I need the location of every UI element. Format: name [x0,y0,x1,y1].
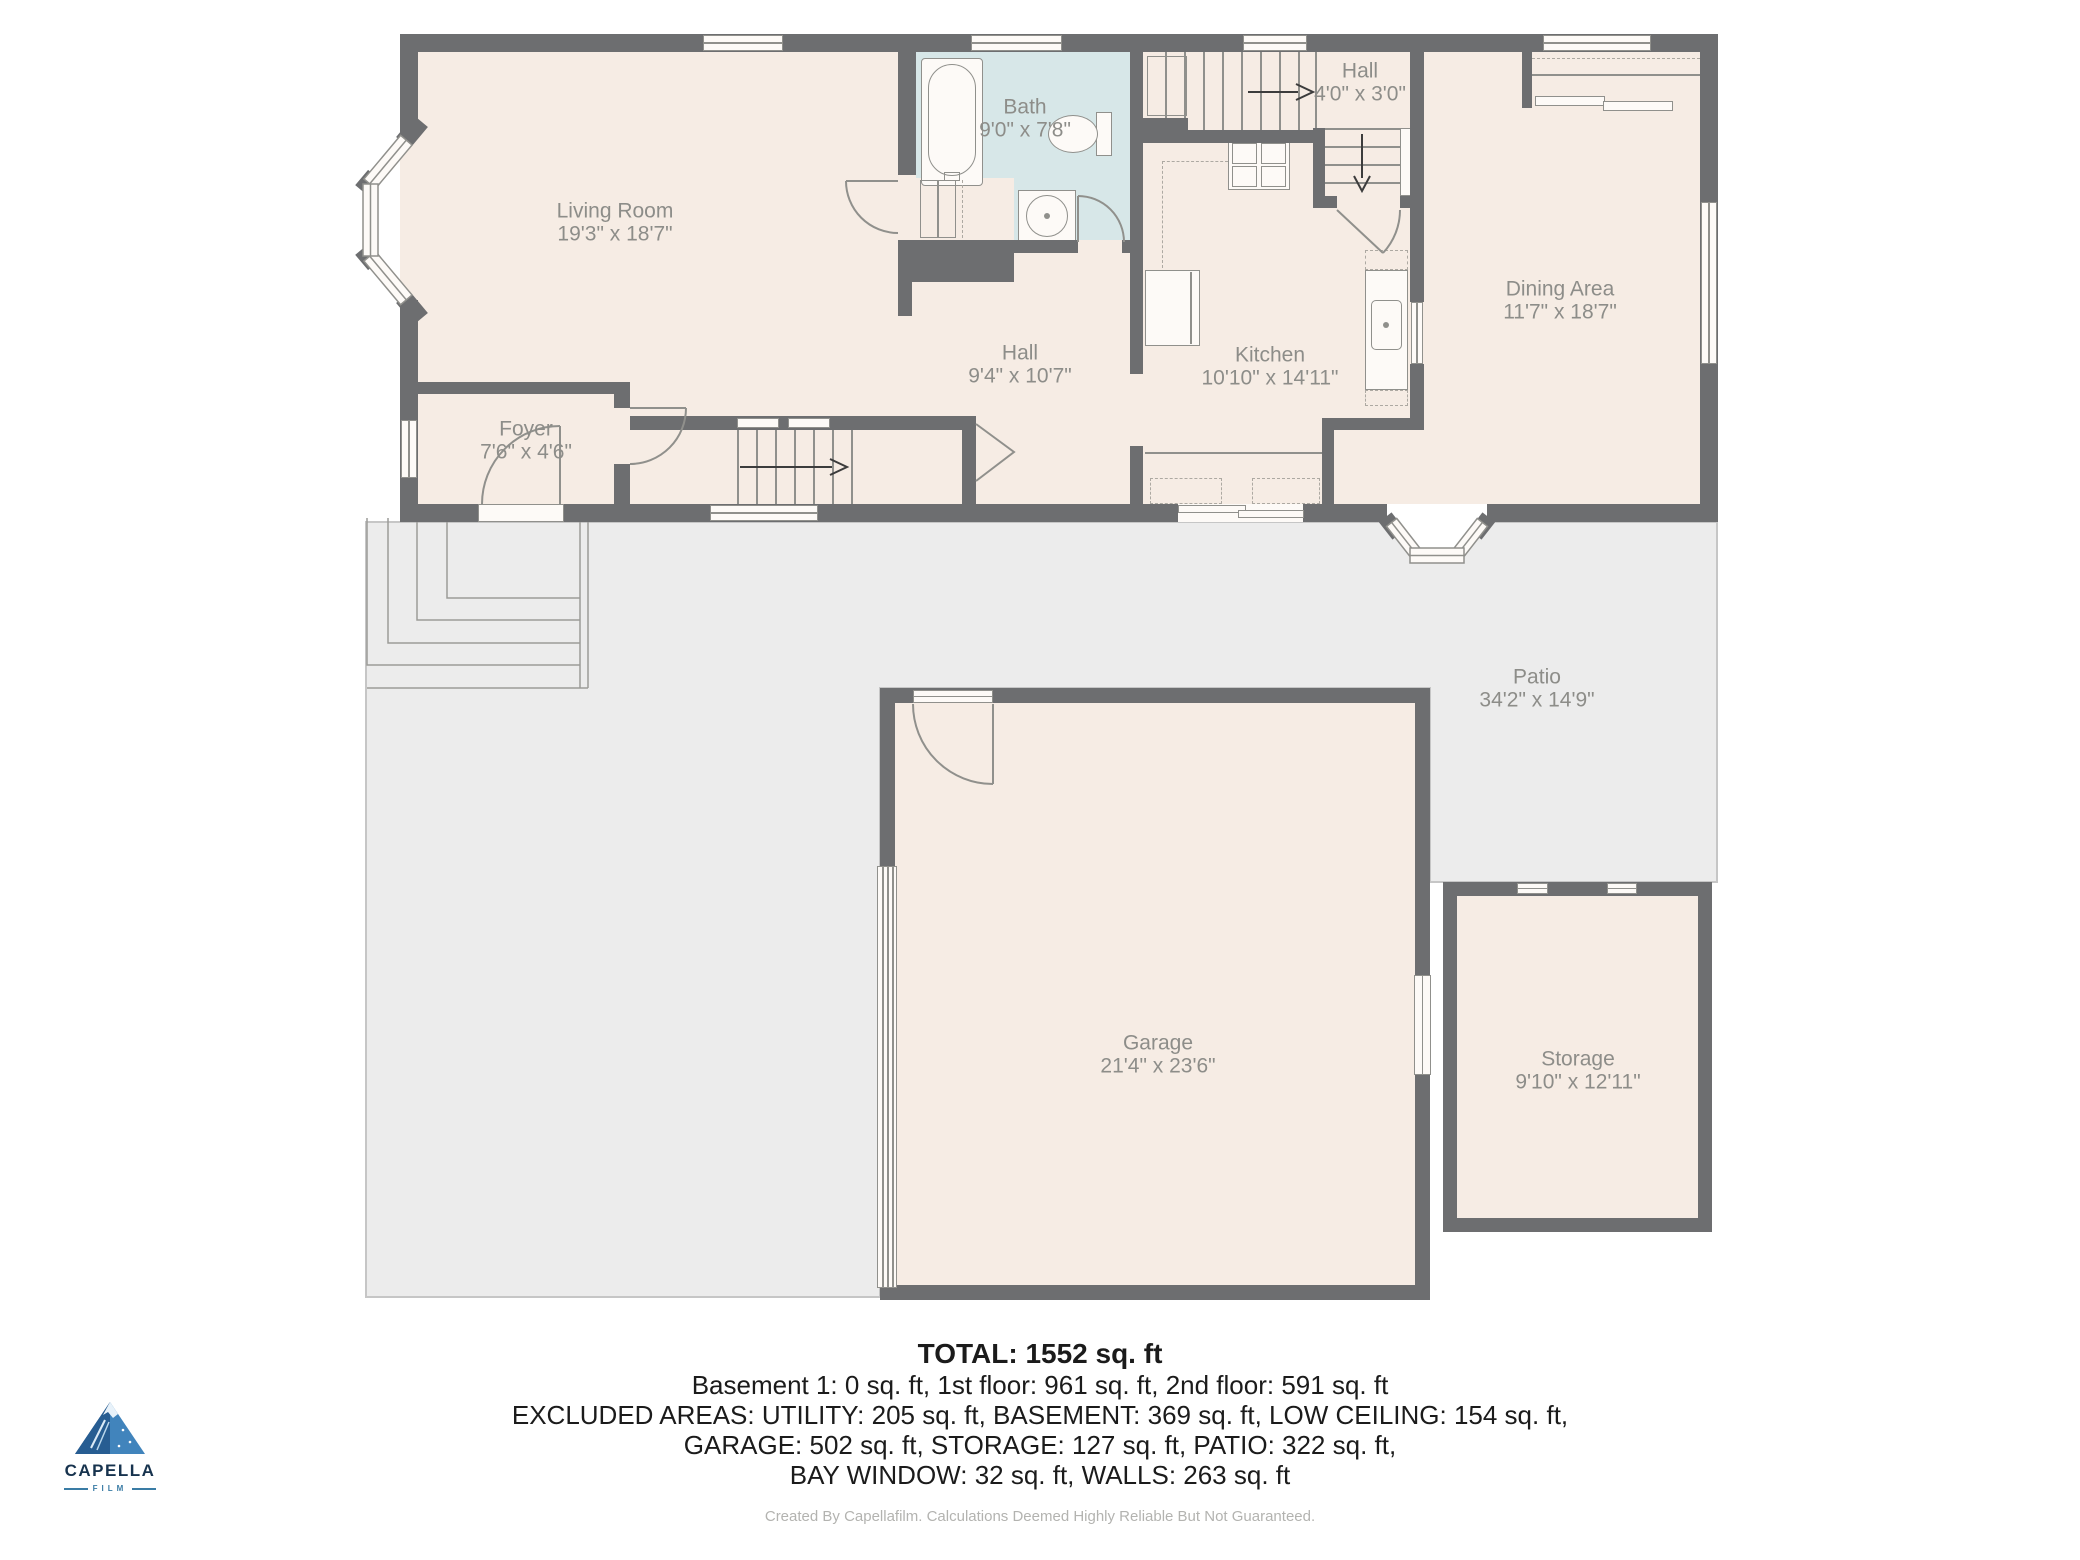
kitchen-counter-edge [1145,452,1322,454]
garage-door-track-line [887,866,889,1288]
dishwasher-dashed [1150,478,1222,504]
dining-closet-shelf-dashed [1532,58,1700,59]
dining-bay-opening [1387,504,1487,522]
hall-bottom-window [710,505,818,521]
storage-top-window [1607,883,1637,894]
entry-door-threshold [478,504,564,522]
kitchen-counter-dashed [1162,161,1163,268]
dining-nook-wall [1322,418,1424,430]
total-area-text: TOTAL: 1552 sq. ft [0,1338,2080,1370]
foyer-right-wall [614,464,630,504]
storage-label: Storage9'10" x 12'11" [1515,1049,1640,1094]
upper-hall-label: Hall4'0" x 3'0" [1314,61,1406,106]
logo-left-bar [64,1488,88,1490]
stove-burner [1261,166,1286,187]
foyer-window [401,420,417,478]
capella-film-logo: CAPELLA FILM [50,1402,170,1493]
living-room-window [703,35,783,51]
excluded-areas-text-2: GARAGE: 502 sq. ft, STORAGE: 127 sq. ft,… [0,1430,2080,1461]
kitchen-wall-stub [1130,446,1143,504]
kitchen-pass-through-window [1411,302,1423,364]
living-bath-wall [898,52,916,175]
dining-top-window [1543,35,1651,51]
lower-hall-label: Hall9'4" x 10'7" [968,343,1072,388]
refrigerator [1145,270,1200,346]
stove-burner [1261,143,1286,164]
stairs-bottom-wall [1143,130,1323,143]
bath-kitchen-wall [1130,52,1143,374]
logo-sub-text: FILM [93,1484,128,1493]
dining-area-label: Dining Area11'7" x 18'7" [1503,279,1617,324]
garage-entry-door-opening [913,690,993,703]
dining-closet-slider [1535,96,1605,106]
exterior-wall-bottom [400,504,1718,522]
kitchen-counter-dashed [1365,250,1408,270]
kitchen-dining-wall [1410,52,1424,302]
logo-right-bar [132,1488,156,1490]
garage-floor-area [895,703,1415,1285]
logo-brand-text: CAPELLA [50,1461,170,1481]
bath-bottom-wall [1014,240,1078,253]
living-room-label: Living Room19'3" x 18'7" [557,201,674,246]
foyer-label: Foyer7'6" x 4'6" [480,419,572,464]
floor-plan-canvas: Living Room19'3" x 18'7" Bath9'0" x 7'8"… [0,0,2080,1560]
bathtub-basin [928,64,976,176]
kitchen-slider-panel [1238,510,1304,518]
excluded-areas-text-3: BAY WINDOW: 32 sq. ft, WALLS: 263 sq. ft [0,1460,2080,1491]
stove-burner [1232,166,1257,187]
garage-door-track-line [892,866,894,1288]
linen-closet [1147,56,1187,116]
mountain-logo-icon [75,1402,145,1454]
stair-head-box [737,418,779,428]
landing-bottom-wall [1313,196,1337,208]
stair-hall-wall [962,416,976,504]
stair-head-box [788,418,830,428]
bath-window [971,35,1062,51]
dining-closet-wall [1522,52,1532,108]
closet-rod [962,180,963,238]
toilet-tank [1096,112,1112,156]
sink-drain [1044,213,1050,219]
dining-right-window [1701,202,1717,364]
kitchen-sink-drain [1383,322,1389,328]
kitchen-slider-panel [1178,505,1246,513]
garage-right-window [1414,975,1431,1075]
stair-hall-window [1243,35,1307,51]
entry-steps [367,518,588,688]
closet-bottom-wall [898,240,1014,282]
dining-closet-slider [1603,101,1673,111]
bath-label: Bath9'0" x 7'8" [979,97,1071,142]
appliance-dashed [1252,478,1320,504]
garage-label: Garage21'4" x 23'6" [1100,1033,1215,1078]
bay-window-opening [400,136,418,300]
kitchen-counter-dashed [1162,161,1228,162]
kitchen-label: Kitchen10'10" x 14'11" [1202,345,1339,390]
storage-top-window [1517,883,1548,894]
garage-door-track-line [882,866,884,1288]
foyer-top-wall [418,382,630,394]
dining-closet-shelf [1532,74,1700,76]
excluded-areas-text-1: EXCLUDED AREAS: UTILITY: 205 sq. ft, BAS… [0,1400,2080,1431]
wall-stub [898,282,912,316]
disclaimer-text: Created By Capellafilm. Calculations Dee… [0,1508,2080,1525]
patio-label: Patio34'2" x 14'9" [1479,667,1594,712]
floor-areas-text: Basement 1: 0 sq. ft, 1st floor: 961 sq.… [0,1370,2080,1401]
stove-burner [1232,143,1257,164]
foyer-right-wall [614,382,630,408]
kitchen-counter-dashed [1365,390,1408,406]
dining-nook-wall [1322,430,1334,504]
